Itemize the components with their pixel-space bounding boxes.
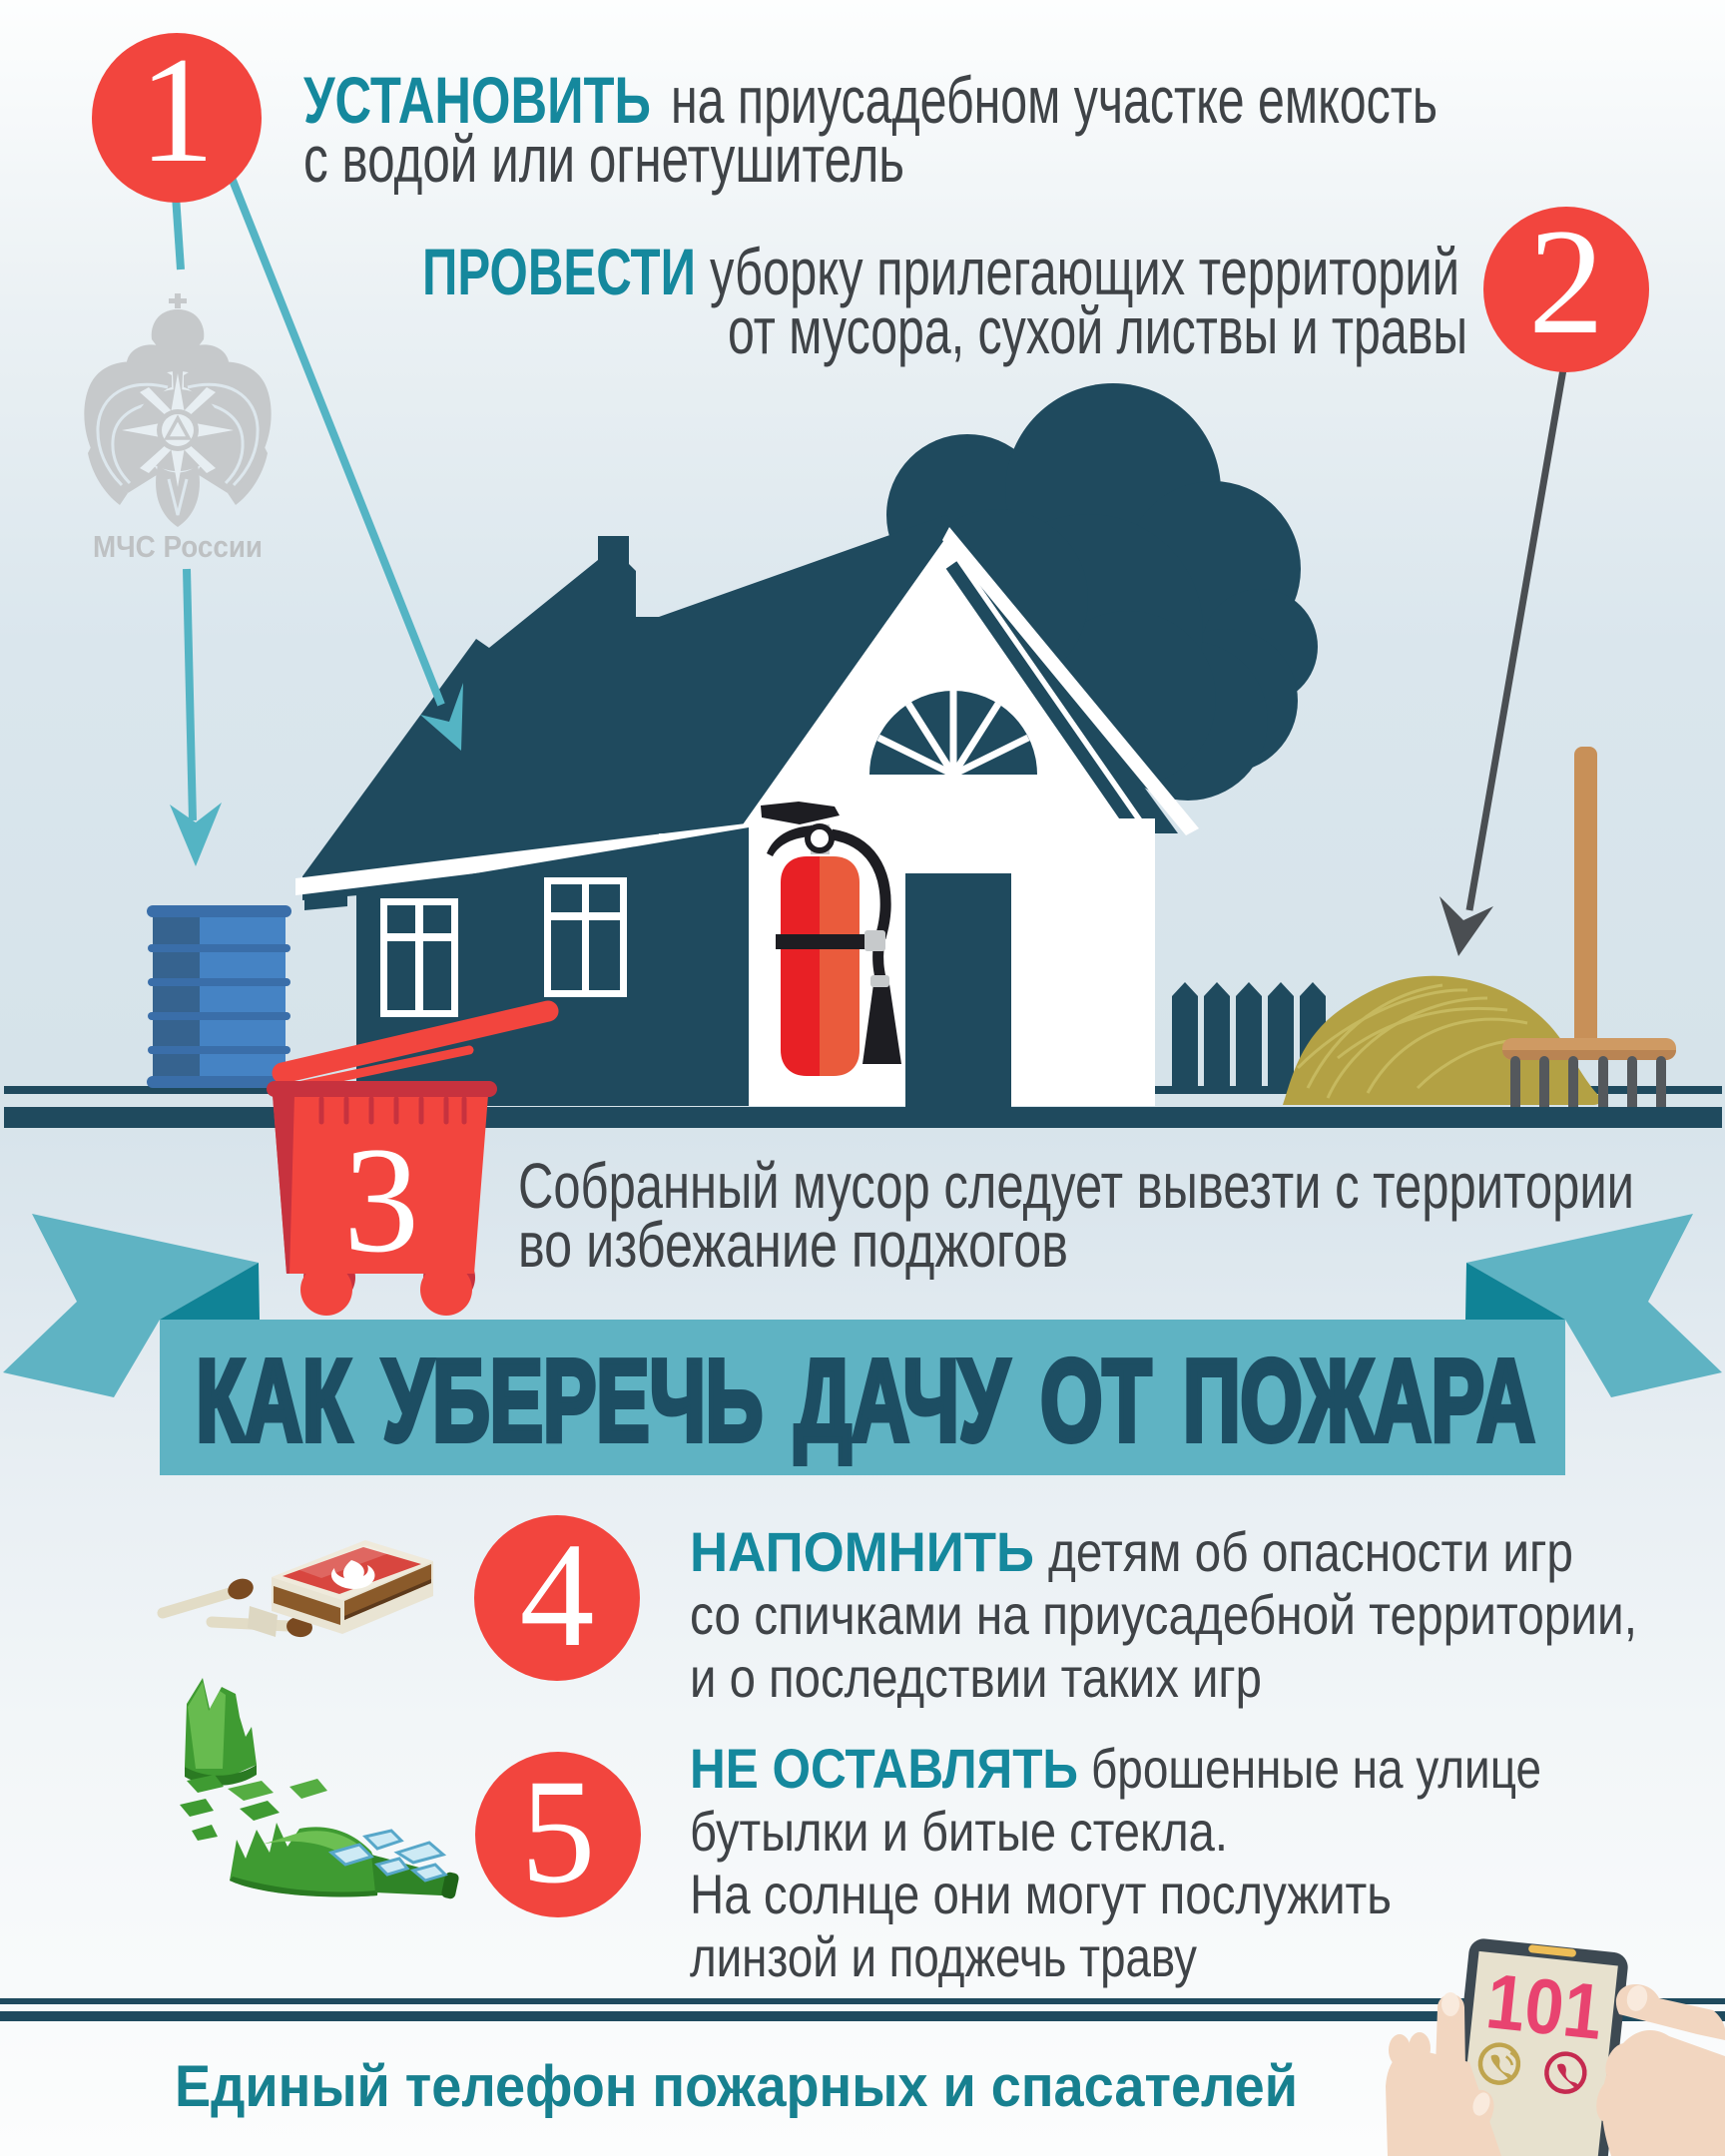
svg-text:4: 4 <box>520 1512 595 1678</box>
svg-text:3: 3 <box>343 1116 419 1284</box>
svg-text:со спичками на приусадебной те: со спичками на приусадебной территории, <box>690 1583 1637 1646</box>
svg-text:бутылки и битые стекла.: бутылки и битые стекла. <box>690 1800 1228 1863</box>
svg-text:2: 2 <box>1528 198 1604 365</box>
svg-text:КАК УБЕРЕЧЬ ДАЧУ ОТ ПОЖАРА: КАК УБЕРЕЧЬ ДАЧУ ОТ ПОЖАРА <box>196 1337 1534 1466</box>
svg-text:МЧС России: МЧС России <box>93 529 263 564</box>
svg-text:ПРОВЕСТИ: ПРОВЕСТИ <box>422 235 696 308</box>
svg-text:1: 1 <box>139 26 215 194</box>
svg-text:На солнце они могут послужить: На солнце они могут послужить <box>690 1863 1392 1925</box>
svg-text:брошенные на улице: брошенные на улице <box>1091 1737 1541 1800</box>
svg-text:детям об опасности игр: детям об опасности игр <box>1048 1520 1573 1583</box>
svg-text:во избежание поджогов: во избежание поджогов <box>518 1209 1068 1281</box>
svg-text:НЕ ОСТАВЛЯТЬ: НЕ ОСТАВЛЯТЬ <box>690 1737 1078 1800</box>
svg-text:линзой и поджечь траву: линзой и поджечь траву <box>690 1925 1197 1988</box>
svg-text:и о последствии таких игр: и о последствии таких игр <box>690 1646 1262 1709</box>
svg-text:Единый телефон пожарных и спас: Единый телефон пожарных и спасателей <box>175 2054 1298 2119</box>
svg-text:от мусора, сухой листвы и трав: от мусора, сухой листвы и травы <box>728 293 1467 367</box>
svg-text:с водой или огнетушитель: с водой или огнетушитель <box>303 122 904 196</box>
svg-text:101: 101 <box>1482 1956 1607 2056</box>
svg-text:5: 5 <box>521 1749 596 1914</box>
svg-text:НАПОМНИТЬ: НАПОМНИТЬ <box>690 1520 1034 1583</box>
